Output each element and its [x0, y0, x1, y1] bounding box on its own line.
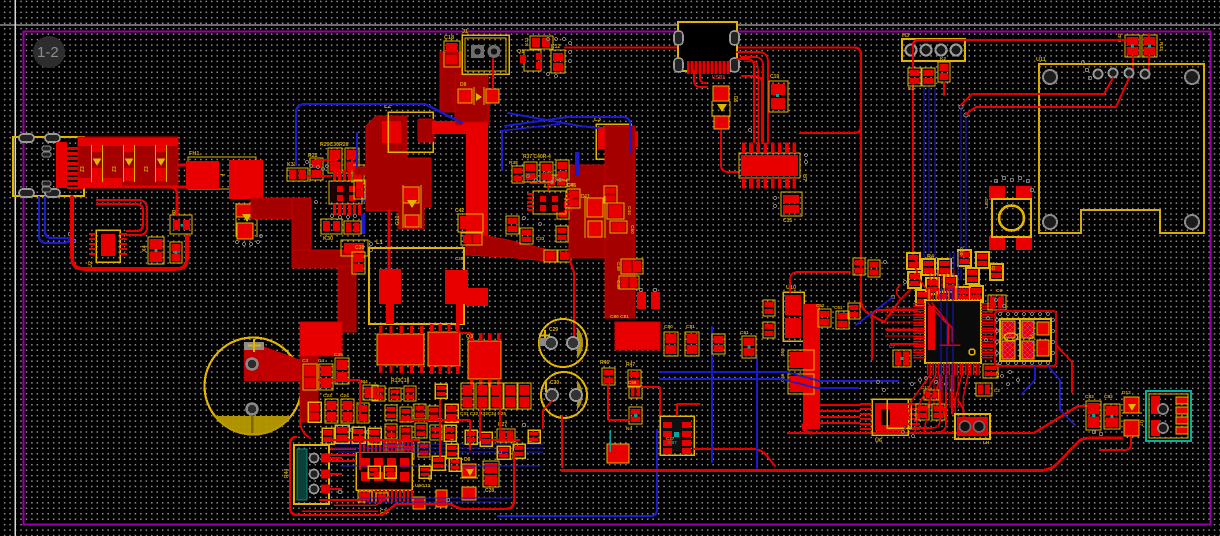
svg-text:C80 C81: C80 C81 [610, 314, 629, 320]
svg-text:Z3: Z3 [80, 166, 86, 172]
svg-text:U10: U10 [786, 285, 796, 291]
svg-text:C33: C33 [536, 236, 545, 241]
svg-text:C81: C81 [686, 324, 695, 330]
svg-text:C37: C37 [666, 436, 675, 441]
svg-text:C42: C42 [455, 208, 464, 214]
svg-text:C9: C9 [995, 372, 1000, 378]
svg-text:C17: C17 [256, 375, 262, 384]
svg-text:LED: LED [984, 198, 990, 208]
svg-text:USB1: USB1 [712, 75, 726, 81]
svg-text:FH1: FH1 [189, 151, 199, 157]
svg-text:R46: R46 [600, 360, 609, 366]
svg-text:R38: R38 [509, 160, 518, 166]
svg-text:C23: C23 [323, 393, 332, 399]
svg-text:Y1: Y1 [1029, 334, 1034, 340]
svg-text:C2: C2 [994, 388, 1000, 393]
svg-text:R29C30R26: R29C30R26 [320, 142, 349, 148]
svg-text:1-2: 1-2 [37, 44, 59, 61]
svg-text:U2: U2 [88, 261, 94, 268]
svg-text:Q1: Q1 [517, 49, 524, 55]
svg-text:Q3: Q3 [466, 334, 473, 340]
svg-text:C38: C38 [355, 245, 364, 251]
svg-text:~: ~ [220, 170, 225, 180]
svg-text:C45: C45 [566, 182, 575, 188]
svg-text:C66: C66 [628, 380, 637, 385]
svg-text:D11: D11 [581, 194, 590, 200]
svg-text:G10: G10 [395, 215, 401, 225]
svg-text:Z3: Z3 [112, 166, 118, 172]
svg-text:C30: C30 [550, 380, 559, 386]
svg-text:L1: L1 [376, 240, 384, 246]
svg-text:C19: C19 [770, 74, 779, 80]
svg-text:C83: C83 [1085, 394, 1094, 400]
svg-text:058: 058 [780, 348, 785, 356]
svg-text:C15: C15 [783, 218, 792, 224]
svg-text:C35: C35 [455, 256, 464, 261]
svg-text:LH: LH [983, 440, 990, 446]
svg-text:C52: C52 [816, 303, 825, 308]
svg-text:D12: D12 [1122, 390, 1131, 396]
svg-text:J1: J1 [462, 29, 468, 35]
svg-text:C49: C49 [615, 262, 621, 271]
svg-text:M4: M4 [361, 379, 368, 385]
svg-text:C10: C10 [959, 247, 964, 256]
svg-text:C56: C56 [780, 373, 785, 382]
svg-text:D9: D9 [464, 457, 471, 463]
svg-text:C7: C7 [889, 344, 895, 350]
svg-text:Z3: Z3 [144, 166, 150, 172]
svg-text:C82: C82 [1104, 394, 1113, 400]
svg-text:C39: C39 [334, 352, 343, 358]
svg-text:U7: U7 [801, 174, 807, 181]
svg-text:C4: C4 [318, 358, 324, 364]
svg-text:K11: K11 [524, 37, 530, 46]
svg-text:C44: C44 [626, 206, 632, 215]
svg-text:X4: X4 [142, 244, 148, 252]
svg-text:U?: U? [1139, 420, 1144, 426]
svg-text:U5G12: U5G12 [415, 483, 431, 489]
svg-text:C51: C51 [834, 305, 843, 310]
svg-text:K30: K30 [323, 236, 333, 242]
svg-text:C29: C29 [549, 327, 558, 333]
svg-text:C28: C28 [485, 488, 494, 494]
svg-text:C24: C24 [340, 393, 349, 399]
svg-text:R22: R22 [308, 153, 318, 159]
svg-text:E4: E4 [908, 86, 914, 92]
svg-text:C50: C50 [629, 225, 635, 234]
svg-text:C48: C48 [615, 280, 621, 289]
svg-text:R37 C40R-4: R37 C40R-4 [523, 154, 551, 160]
svg-text:C3: C3 [302, 358, 308, 364]
svg-text:H3: H3 [902, 33, 909, 39]
svg-text:D8: D8 [460, 82, 467, 88]
svg-text:C6: C6 [996, 288, 1002, 294]
svg-text:U6: U6 [875, 438, 882, 444]
svg-text:C61: C61 [740, 330, 749, 336]
svg-text:R43: R43 [1158, 42, 1164, 51]
svg-text:C18: C18 [444, 35, 454, 41]
svg-text:R13C18: R13C18 [391, 378, 410, 384]
svg-text:K12: K12 [551, 44, 560, 50]
svg-text:K2: K2 [940, 56, 946, 62]
svg-text:R47: R47 [626, 362, 635, 368]
svg-text:U11: U11 [1036, 57, 1046, 63]
svg-text:C11: C11 [991, 262, 996, 271]
svg-text:N4: N4 [626, 426, 632, 432]
svg-text:C80: C80 [664, 324, 673, 330]
svg-text:D5: D5 [732, 96, 738, 103]
